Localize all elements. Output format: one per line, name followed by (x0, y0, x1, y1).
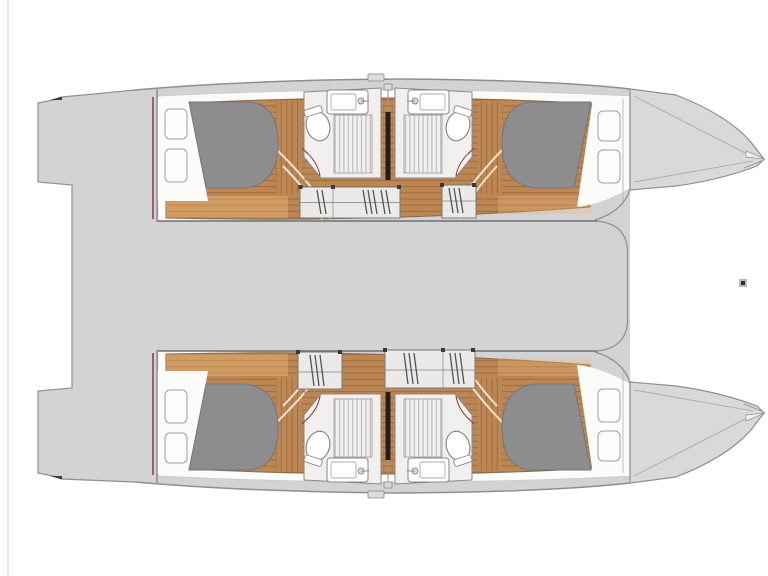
transom-platform (38, 90, 135, 482)
port-companionway-steps (299, 183, 477, 218)
transom-fill (38, 90, 135, 482)
image-edge-line (7, 0, 9, 576)
starboard-companionway-steps (296, 348, 475, 389)
cursor-mark-dot (741, 281, 745, 285)
deck-plan-canvas (0, 0, 768, 576)
stern-cleat (50, 97, 62, 101)
deck-plan-page (0, 0, 768, 576)
cursor-mark (739, 279, 747, 287)
